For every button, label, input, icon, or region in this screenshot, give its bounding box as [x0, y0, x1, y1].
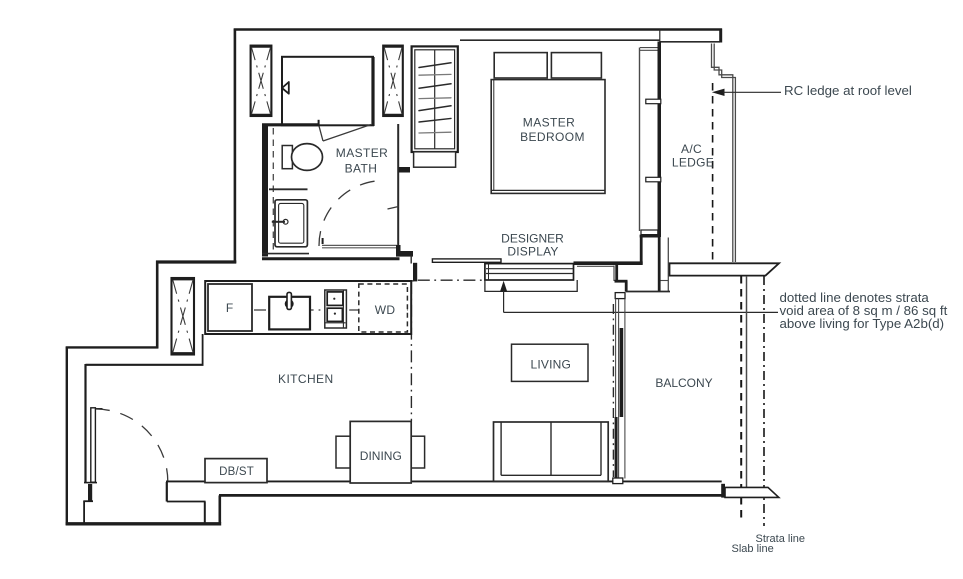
svg-text:RC ledge at roof level: RC ledge at roof level	[784, 83, 912, 98]
svg-text:BATH: BATH	[345, 161, 378, 175]
svg-text:above living for Type A2b(d): above living for Type A2b(d)	[780, 316, 945, 331]
svg-text:A/C: A/C	[681, 142, 702, 156]
svg-text:Slab line: Slab line	[732, 543, 774, 555]
svg-text:WD: WD	[375, 303, 396, 317]
svg-text:MASTER: MASTER	[523, 116, 575, 130]
svg-text:BALCONY: BALCONY	[655, 376, 712, 390]
svg-text:LIVING: LIVING	[531, 357, 572, 371]
svg-text:F: F	[226, 301, 233, 315]
svg-text:MASTER: MASTER	[336, 146, 388, 160]
svg-text:LEDGE: LEDGE	[672, 155, 714, 169]
svg-text:BEDROOM: BEDROOM	[520, 130, 585, 144]
svg-text:KITCHEN: KITCHEN	[278, 372, 333, 386]
svg-text:DB/ST: DB/ST	[219, 466, 254, 478]
svg-text:DINING: DINING	[360, 449, 402, 463]
svg-text:DISPLAY: DISPLAY	[507, 244, 558, 258]
